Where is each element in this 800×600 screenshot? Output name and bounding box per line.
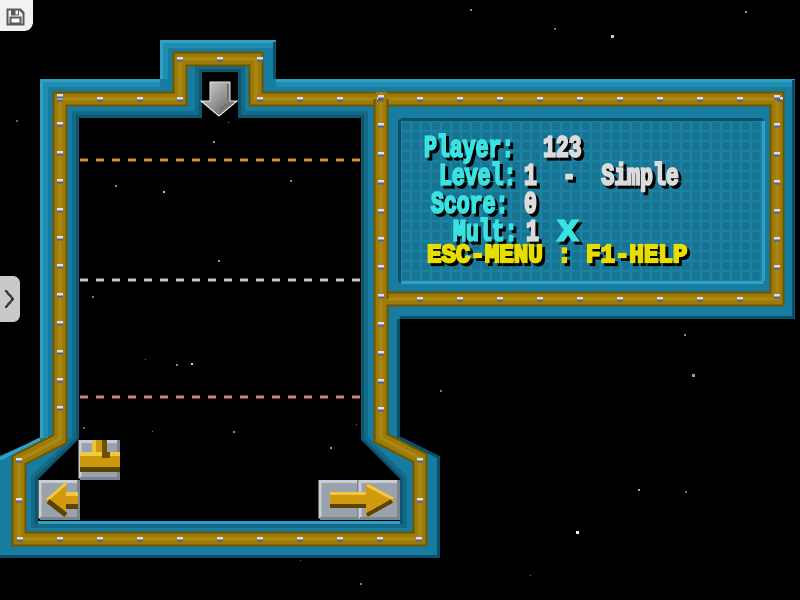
svg-text:ESC-MENU : F1-HELP: ESC-MENU : F1-HELP [427,240,687,270]
svg-text:1 - Simple: 1 - Simple [524,159,679,194]
